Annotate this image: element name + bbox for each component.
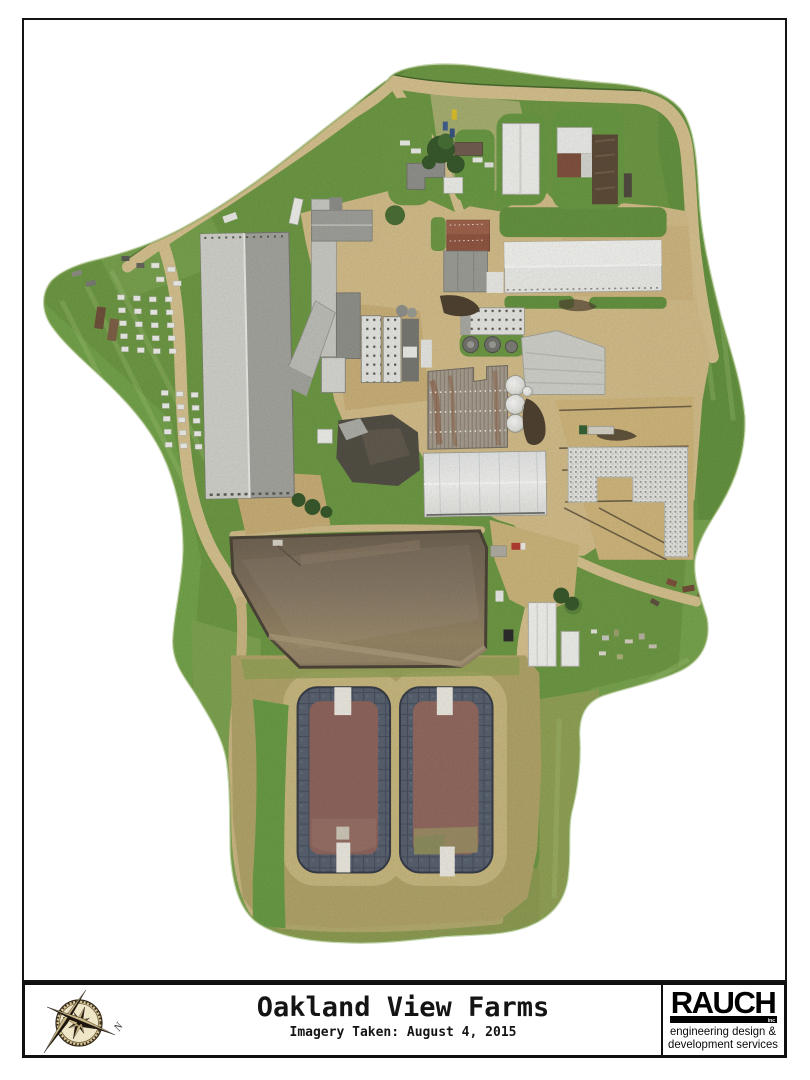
map-title: Oakland View Farms <box>145 993 661 1023</box>
title-block: N Oakland View Farms Imagery Taken: Augu… <box>22 982 787 1058</box>
company-logo: RAUCH inc engineering design & developme… <box>663 985 784 1055</box>
aerial-orthophoto <box>24 20 785 980</box>
map-frame <box>22 18 787 982</box>
logo-bar <box>670 1016 777 1023</box>
title-text-group: Oakland View Farms Imagery Taken: August… <box>145 985 661 1055</box>
map-sheet: N Oakland View Farms Imagery Taken: Augu… <box>0 0 810 1080</box>
map-subtitle: Imagery Taken: August 4, 2015 <box>145 1025 661 1040</box>
rauch-logo-graphic: RAUCH inc engineering design & developme… <box>663 985 784 1055</box>
grain-light <box>24 20 785 980</box>
logo-company-name: RAUCH <box>671 985 776 1020</box>
compass-rose-graphic <box>39 987 125 1053</box>
logo-tagline-2: development services <box>668 1037 778 1051</box>
compass-rose <box>39 987 125 1053</box>
logo-tagline-1: engineering design & <box>670 1024 776 1038</box>
